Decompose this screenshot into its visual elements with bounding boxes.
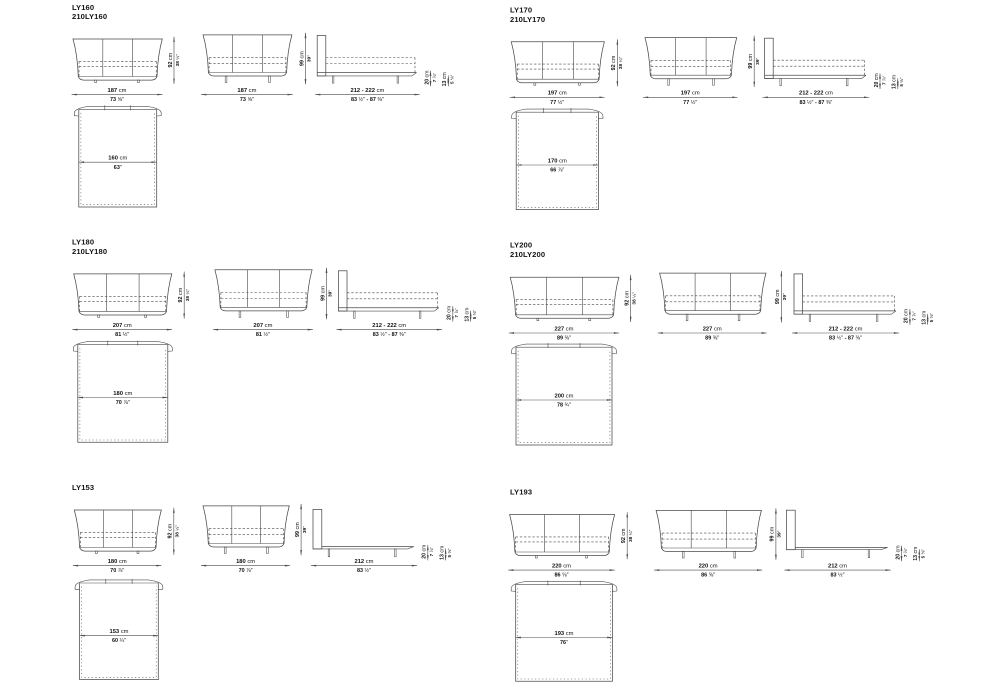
svg-text:83 ½″: 83 ½″: [357, 567, 371, 574]
svg-text:39″: 39″: [777, 530, 783, 537]
svg-text:38 ¼″: 38 ¼″: [175, 54, 181, 67]
svg-text:78 ¾″: 78 ¾″: [557, 403, 571, 409]
svg-text:99 cm: 99 cm: [299, 51, 305, 66]
svg-text:20 cm: 20 cm: [424, 71, 430, 85]
svg-text:212 cm: 212 cm: [828, 564, 847, 570]
svg-text:5 ⅛″: 5 ⅛″: [447, 548, 452, 558]
svg-text:212 cm: 212 cm: [354, 559, 373, 565]
svg-text:20 cm: 20 cm: [895, 545, 901, 559]
svg-text:LY170: LY170: [510, 6, 532, 15]
svg-text:70 ⅞″: 70 ⅞″: [116, 400, 130, 406]
svg-text:92 cm: 92 cm: [621, 528, 627, 543]
svg-text:38 ¼″: 38 ¼″: [628, 529, 634, 542]
svg-text:193 cm: 193 cm: [554, 631, 573, 637]
svg-text:86 ⅝″: 86 ⅝″: [554, 573, 568, 579]
svg-text:212 - 222 cm: 212 - 222 cm: [350, 88, 384, 94]
svg-text:83 ½″ - 87 ⅜″: 83 ½″ - 87 ⅜″: [799, 99, 832, 106]
svg-text:210LY180: 210LY180: [72, 247, 107, 256]
svg-text:20 cm: 20 cm: [447, 306, 453, 320]
svg-text:LY153: LY153: [72, 483, 94, 492]
svg-text:187 cm: 187 cm: [237, 88, 256, 94]
svg-text:13 cm: 13 cm: [922, 311, 928, 325]
svg-text:86 ⅝″: 86 ⅝″: [701, 573, 715, 579]
svg-text:LY160: LY160: [72, 3, 94, 12]
svg-text:99 cm: 99 cm: [320, 286, 326, 301]
svg-text:38 ¼″: 38 ¼″: [185, 289, 191, 302]
svg-text:73 ⅝″: 73 ⅝″: [240, 97, 254, 103]
svg-text:207 cm: 207 cm: [113, 323, 132, 329]
svg-text:99 cm: 99 cm: [775, 289, 781, 304]
svg-text:70 ⅞″: 70 ⅞″: [110, 568, 124, 574]
svg-text:39″: 39″: [327, 290, 333, 297]
svg-text:92 cm: 92 cm: [168, 52, 174, 67]
svg-text:92 cm: 92 cm: [611, 55, 617, 70]
svg-text:81 ½″: 81 ½″: [115, 331, 129, 338]
svg-text:207 cm: 207 cm: [253, 323, 272, 329]
svg-text:220 cm: 220 cm: [699, 564, 718, 570]
svg-text:38 ¼″: 38 ¼″: [631, 292, 637, 305]
svg-text:197 cm: 197 cm: [681, 91, 700, 97]
svg-text:212 - 222 cm: 212 - 222 cm: [372, 323, 406, 329]
svg-text:99 cm: 99 cm: [295, 522, 301, 537]
svg-text:5 ⅛″: 5 ⅛″: [472, 310, 477, 320]
svg-text:7 ⅞″: 7 ⅞″: [429, 547, 434, 557]
svg-text:83 ½″ - 87 ⅜″: 83 ½″ - 87 ⅜″: [829, 335, 862, 342]
svg-text:13 cm: 13 cm: [913, 547, 919, 561]
svg-text:92 cm: 92 cm: [178, 287, 184, 302]
svg-text:160 cm: 160 cm: [108, 156, 127, 162]
svg-text:LY200: LY200: [510, 241, 532, 250]
svg-text:13 cm: 13 cm: [464, 308, 470, 322]
svg-text:83 ½″ - 87 ⅜″: 83 ½″ - 87 ⅜″: [373, 331, 406, 338]
svg-text:92 cm: 92 cm: [168, 523, 174, 538]
svg-text:20 cm: 20 cm: [422, 545, 428, 559]
svg-text:39″: 39″: [306, 55, 312, 62]
svg-text:77 ½″: 77 ½″: [683, 99, 697, 106]
svg-text:180 cm: 180 cm: [108, 559, 127, 565]
svg-text:92 cm: 92 cm: [624, 291, 630, 306]
svg-text:70 ⅞″: 70 ⅞″: [239, 568, 253, 574]
svg-text:13 cm: 13 cm: [892, 75, 898, 89]
svg-text:180 cm: 180 cm: [236, 559, 255, 565]
svg-text:210LY160: 210LY160: [72, 12, 107, 21]
svg-text:5 ⅛″: 5 ⅛″: [899, 77, 904, 87]
svg-text:38 ¼″: 38 ¼″: [618, 57, 624, 70]
svg-text:197 cm: 197 cm: [548, 91, 567, 97]
svg-text:LY193: LY193: [510, 488, 532, 497]
svg-text:89 ⅜″: 89 ⅜″: [557, 336, 571, 342]
svg-text:13 cm: 13 cm: [442, 72, 448, 86]
svg-text:13 cm: 13 cm: [439, 546, 445, 560]
svg-text:LY180: LY180: [72, 238, 94, 247]
svg-text:38 ¼″: 38 ¼″: [175, 525, 181, 538]
svg-text:210LY200: 210LY200: [510, 250, 545, 259]
svg-text:7 ⅞″: 7 ⅞″: [911, 311, 916, 321]
svg-text:77 ½″: 77 ½″: [550, 99, 564, 106]
svg-text:7 ⅞″: 7 ⅞″: [454, 308, 459, 318]
svg-text:200 cm: 200 cm: [554, 393, 573, 399]
svg-text:60 ¼″: 60 ¼″: [112, 638, 126, 644]
svg-text:39″: 39″: [755, 57, 761, 64]
svg-text:187 cm: 187 cm: [107, 88, 126, 94]
svg-text:5 ⅛″: 5 ⅛″: [921, 549, 926, 559]
svg-text:39″: 39″: [302, 526, 308, 533]
svg-text:83 ½″ - 87 ⅜″: 83 ½″ - 87 ⅜″: [351, 96, 384, 103]
svg-text:5 ⅛″: 5 ⅛″: [450, 74, 455, 84]
svg-text:153 cm: 153 cm: [109, 629, 128, 635]
svg-text:63″: 63″: [114, 165, 122, 171]
svg-text:180 cm: 180 cm: [113, 391, 132, 397]
svg-text:99 cm: 99 cm: [748, 53, 754, 68]
svg-text:210LY170: 210LY170: [510, 15, 545, 24]
svg-text:7 ⅞″: 7 ⅞″: [903, 547, 908, 557]
svg-text:83 ½″: 83 ½″: [830, 572, 844, 579]
svg-text:76″: 76″: [560, 640, 568, 646]
svg-text:73 ⅝″: 73 ⅝″: [110, 97, 124, 103]
svg-text:89 ⅜″: 89 ⅜″: [705, 336, 719, 342]
svg-text:227 cm: 227 cm: [554, 326, 573, 332]
svg-text:20 cm: 20 cm: [904, 309, 910, 323]
svg-text:212 - 222 cm: 212 - 222 cm: [799, 91, 833, 97]
svg-text:81 ½″: 81 ½″: [256, 331, 270, 338]
svg-text:20 cm: 20 cm: [874, 73, 880, 87]
svg-text:227 cm: 227 cm: [703, 326, 722, 332]
svg-text:7 ⅞″: 7 ⅞″: [881, 75, 886, 85]
svg-text:212 - 222 cm: 212 - 222 cm: [829, 326, 863, 332]
svg-text:99 cm: 99 cm: [770, 526, 776, 541]
svg-text:170 cm: 170 cm: [548, 158, 567, 164]
svg-text:5 ⅛″: 5 ⅛″: [929, 313, 934, 323]
svg-text:7 ⅞″: 7 ⅞″: [432, 73, 437, 83]
svg-text:39″: 39″: [782, 293, 788, 300]
svg-text:220 cm: 220 cm: [552, 564, 571, 570]
svg-text:66 ⅞″: 66 ⅞″: [550, 168, 564, 174]
